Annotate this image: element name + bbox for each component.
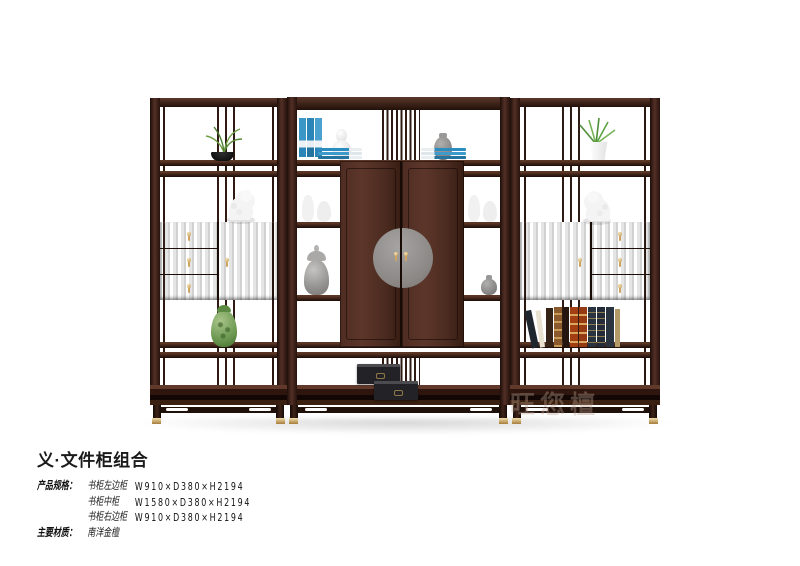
drawer-pull xyxy=(618,232,622,236)
apron-slot xyxy=(305,408,327,411)
lion-statue xyxy=(226,184,257,224)
top-rail xyxy=(287,97,510,110)
glass-vases xyxy=(466,190,499,222)
white-pot xyxy=(589,142,608,160)
book xyxy=(570,307,578,347)
drawer-divider xyxy=(590,274,650,275)
material-value: 南洋金檀 xyxy=(87,526,135,542)
brass-foot xyxy=(649,418,658,424)
book xyxy=(307,118,314,157)
book xyxy=(421,152,466,155)
book xyxy=(579,307,587,347)
frame-upright xyxy=(650,98,660,405)
shelf xyxy=(288,352,509,358)
brass-foot xyxy=(289,418,298,424)
small-gray-vase xyxy=(481,279,497,295)
top-rail xyxy=(150,98,287,107)
hanging-slats xyxy=(382,107,420,162)
book xyxy=(554,307,562,347)
apron-slot xyxy=(166,408,188,411)
blue-books-stack xyxy=(421,148,466,160)
base-apron xyxy=(296,407,501,413)
base-platform xyxy=(150,385,287,405)
door-pull xyxy=(578,258,582,262)
spec-row: 产品规格： 书柜左边柜 W910×D380×H2194 xyxy=(37,479,282,495)
book xyxy=(318,148,362,151)
drawer-pull xyxy=(187,232,191,236)
round-metal-plate xyxy=(373,228,433,288)
spec-row: 书柜右边柜 W910×D380×H2194 xyxy=(37,510,282,526)
plant-icon xyxy=(574,117,618,145)
spec-size: W910×D380×H2194 xyxy=(135,510,244,526)
drawer-divider xyxy=(160,274,217,275)
door-pull xyxy=(404,252,408,256)
shelf xyxy=(151,352,286,358)
book xyxy=(318,152,362,155)
spec-size: W910×D380×H2194 xyxy=(135,479,244,495)
gray-temple-jar xyxy=(304,245,329,295)
drawer-divider xyxy=(160,248,217,249)
spec-item: 书柜中柜 xyxy=(87,495,135,511)
book xyxy=(606,307,614,347)
material-row: 主要材质： 南洋金檀 xyxy=(37,526,282,542)
book xyxy=(563,307,569,347)
book xyxy=(597,307,605,347)
divider xyxy=(590,222,592,300)
brass-foot xyxy=(152,418,161,424)
shelf xyxy=(151,171,286,177)
base-apron xyxy=(159,407,278,413)
drawer-cabinet-block xyxy=(520,222,650,300)
leg xyxy=(290,405,298,418)
jar-body xyxy=(304,260,329,295)
product-title: 义·文件柜组合 xyxy=(37,446,377,471)
drawer-pull xyxy=(187,284,191,288)
shelf xyxy=(511,160,659,166)
book-row xyxy=(532,303,612,347)
book xyxy=(546,308,553,347)
drawer-cabinet-block xyxy=(160,222,277,300)
leg xyxy=(499,405,507,418)
book xyxy=(299,118,306,157)
frame-upright xyxy=(287,97,297,405)
book xyxy=(421,156,466,159)
spec-label xyxy=(37,495,87,511)
caption-block: 义·文件柜组合 产品规格： 书柜左边柜 W910×D380×H2194 书柜中柜… xyxy=(37,446,377,541)
spec-item: 书柜左边柜 xyxy=(87,479,135,495)
catalog-page: 旺您檀 义·文件柜组合 产品规格： 书柜左边柜 W910×D380×H2194 … xyxy=(0,0,800,566)
book xyxy=(318,156,362,159)
book xyxy=(421,148,466,151)
leg xyxy=(276,405,284,418)
black-box xyxy=(374,381,418,400)
plant-icon xyxy=(204,124,244,154)
spec-table: 产品规格： 书柜左边柜 W910×D380×H2194 书柜中柜 W1580×D… xyxy=(37,479,282,541)
blue-books-stack xyxy=(318,148,362,160)
glass-vase xyxy=(483,201,497,222)
brass-foot xyxy=(499,418,508,424)
spec-label xyxy=(37,510,87,526)
divider xyxy=(217,222,219,300)
material-label: 主要材质： xyxy=(37,526,87,542)
spec-label: 产品规格： xyxy=(37,479,87,495)
door-seam xyxy=(400,161,402,347)
glass-vase xyxy=(468,195,480,222)
center-cabinet xyxy=(287,97,510,437)
leg xyxy=(153,405,161,418)
left-side-cabinet xyxy=(150,97,287,437)
frame-upright xyxy=(510,98,520,405)
spec-row: 书柜中柜 W1580×D380×H2194 xyxy=(37,495,282,511)
glass-vase xyxy=(302,195,314,222)
glass-vase xyxy=(317,201,331,222)
shelf xyxy=(511,352,659,358)
shelf xyxy=(511,171,659,177)
frame-upright xyxy=(500,97,510,405)
brand-watermark: 旺您檀 xyxy=(510,385,630,421)
spec-item: 书柜右边柜 xyxy=(87,510,135,526)
lion-statue xyxy=(582,185,613,225)
door-pull xyxy=(394,252,398,256)
frame-upright xyxy=(150,98,160,405)
drawer-pull xyxy=(618,258,622,262)
apron-slot xyxy=(249,408,271,411)
drawer-pull xyxy=(618,284,622,288)
brass-foot xyxy=(276,418,285,424)
green-vase xyxy=(211,310,237,347)
frame-upright xyxy=(277,98,287,405)
leg xyxy=(649,405,657,418)
drawer-pull xyxy=(187,258,191,262)
product-photo: 旺您檀 xyxy=(150,97,660,437)
drawer-divider xyxy=(590,248,650,249)
glass-vases xyxy=(300,190,333,222)
spec-size: W1580×D380×H2194 xyxy=(135,495,251,511)
book xyxy=(615,309,620,347)
black-bowl xyxy=(211,152,234,161)
door-pull xyxy=(225,258,229,262)
top-rail xyxy=(510,98,660,107)
apron-slot xyxy=(470,408,492,411)
book xyxy=(588,307,596,347)
